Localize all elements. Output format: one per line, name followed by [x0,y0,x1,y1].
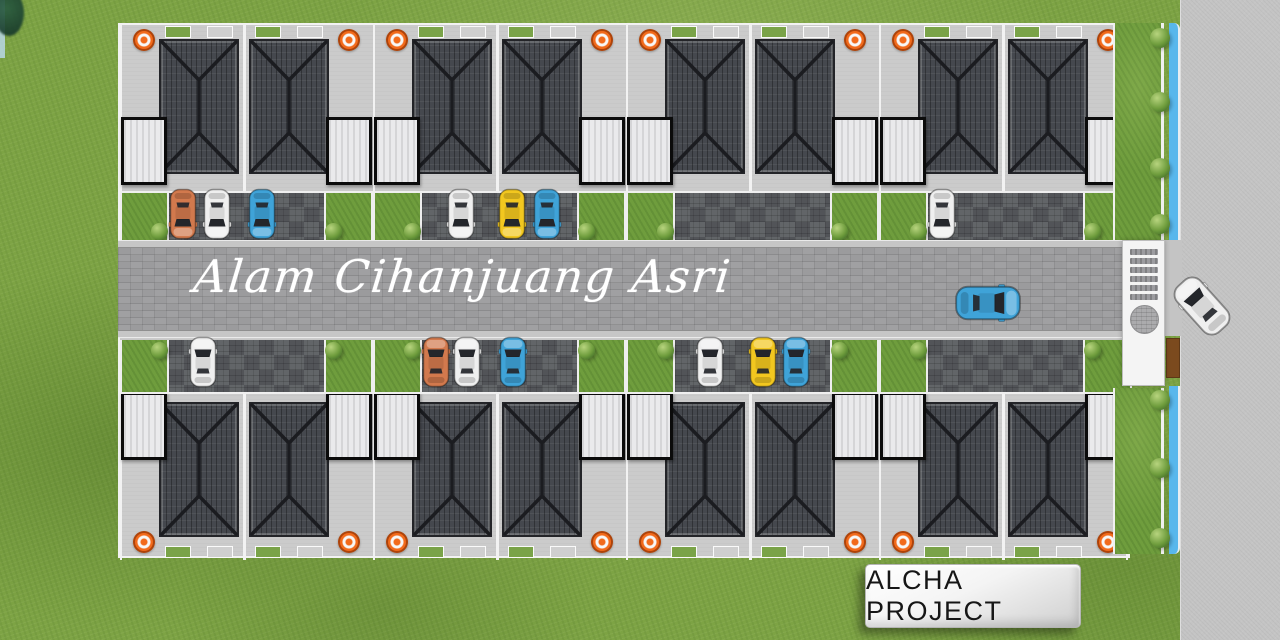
yard-bush-icon [404,223,421,240]
driveway [675,192,830,242]
house-terrace [550,546,576,558]
house-roof [1008,39,1088,174]
gate-barrier [1166,338,1180,378]
house-terrace [255,546,281,558]
plot-divider [1002,25,1005,192]
water-tank-icon [386,531,408,553]
house-terrace [460,26,486,38]
water-tank-icon [133,29,155,51]
house-terrace [671,546,697,558]
gate-louver [1130,267,1158,273]
house-roof [502,39,582,174]
house-terrace [165,26,191,38]
carport [326,392,372,460]
canal-bush-icon [1150,528,1170,548]
house-roof [665,39,745,174]
main-road: Alam Cihanjuang Asri [118,248,1122,330]
sidewalk-north [118,240,1130,248]
house-terrace [1014,26,1040,38]
green-belt-north [1113,23,1164,240]
house-terrace [924,26,950,38]
driveway [422,340,577,394]
water-tank-icon [338,531,360,553]
house-terrace [803,546,829,558]
roof-ridge-icon [918,39,998,174]
roof-ridge-icon [249,402,329,537]
house-roof [412,402,492,537]
carport [832,392,878,460]
roof-ridge-icon [1008,402,1088,537]
house-roof [249,39,329,174]
house-terrace [418,546,444,558]
plot-strip-line [120,392,1128,394]
entrance-gate [1122,240,1165,386]
project-badge-button[interactable]: ALCHA PROJECT [865,564,1081,628]
carport [880,392,926,460]
roof-ridge-icon [412,39,492,174]
carport [627,392,673,460]
driveway [169,192,324,242]
entrance-driveway [1164,240,1182,336]
carport [579,392,625,460]
house-terrace [671,26,697,38]
house-terrace [761,546,787,558]
canal-bush-icon [1150,458,1170,478]
yard-bush-icon [910,223,927,240]
house-roof [159,402,239,537]
roof-ridge-icon [918,402,998,537]
roof-ridge-icon [412,402,492,537]
canal-bush-icon [1150,390,1170,410]
driveway [928,192,1083,242]
canal-bush-icon [1150,214,1170,234]
yard-bush-icon [657,342,674,359]
roof-ridge-icon [755,402,835,537]
house-terrace [1056,546,1082,558]
house-terrace [418,26,444,38]
canal-bush-icon [1150,28,1170,48]
yard-bush-icon [325,342,342,359]
house-terrace [713,546,739,558]
water-tank-icon [133,531,155,553]
plot-divider [243,25,246,192]
gate-louver [1130,294,1158,300]
water-tank-icon [892,531,914,553]
carport [326,117,372,185]
house-roof [1008,402,1088,537]
driveway [422,192,577,242]
roof-ridge-icon [502,39,582,174]
canal-north [1169,23,1180,240]
gate-louver [1130,276,1158,282]
house-roof [412,39,492,174]
house-terrace [713,26,739,38]
water-tank-icon [591,29,613,51]
roof-ridge-icon [1008,39,1088,174]
house-terrace [207,546,233,558]
yard-bush-icon [325,223,342,240]
driveway [928,340,1083,394]
house-terrace [966,546,992,558]
carport [627,117,673,185]
carport [880,117,926,185]
house-terrace [460,546,486,558]
carport [121,392,167,460]
roof-ridge-icon [665,402,745,537]
yard-bush-icon [657,223,674,240]
yard-bush-icon [831,342,848,359]
house-roof [159,39,239,174]
house-terrace [761,26,787,38]
house-roof [665,402,745,537]
water-tank-icon [639,531,661,553]
yard-bush-icon [831,223,848,240]
yard-bush-icon [1084,223,1101,240]
house-terrace [550,26,576,38]
house-terrace [1014,546,1040,558]
roof-ridge-icon [159,402,239,537]
gate-louver [1130,249,1158,255]
house-roof [249,402,329,537]
roof-ridge-icon [159,39,239,174]
yard-bush-icon [578,342,595,359]
roof-ridge-icon [665,39,745,174]
gate-louver [1130,258,1158,264]
yard-bush-icon [151,342,168,359]
carport [579,117,625,185]
plot-divider [496,394,499,560]
house-terrace [803,26,829,38]
plot-strip-line [120,191,1128,193]
gate-louver [1130,285,1158,291]
canal-south [1169,386,1180,554]
outer-road [1180,0,1280,640]
house-terrace [508,546,534,558]
water-tank-icon [386,29,408,51]
roof-ridge-icon [755,39,835,174]
house-roof [918,39,998,174]
carport [374,392,420,460]
canal-bush-icon [1150,158,1170,178]
house-terrace [966,26,992,38]
plot-divider [749,394,752,560]
plot-divider [243,394,246,560]
water-tank-icon [591,531,613,553]
yard-bush-icon [404,342,421,359]
water-tank-icon [892,29,914,51]
water-tank-icon [639,29,661,51]
house-terrace [1056,26,1082,38]
street-name-label: Alam Cihanjuang Asri [191,250,734,303]
gate-circle-feature [1130,305,1159,334]
siteplan-scene: Alam Cihanjuang Asri ALCHA PROJECT [0,0,1280,640]
carport [374,117,420,185]
house-terrace [924,546,950,558]
roof-ridge-icon [249,39,329,174]
house-terrace [297,26,323,38]
carport [832,117,878,185]
plot-divider [749,25,752,192]
house-terrace [255,26,281,38]
house-terrace [165,546,191,558]
house-terrace [207,26,233,38]
sidewalk-south [118,330,1130,338]
plot-divider [496,25,499,192]
water-tank-icon [338,29,360,51]
house-roof [755,402,835,537]
water-tank-icon [844,29,866,51]
driveway [675,340,830,394]
roof-ridge-icon [502,402,582,537]
canal-bush-icon [1150,92,1170,112]
yard-bush-icon [578,223,595,240]
water-tank-icon [844,531,866,553]
house-roof [918,402,998,537]
driveway [169,340,324,394]
house-roof [502,402,582,537]
house-terrace [508,26,534,38]
plot-divider [1002,394,1005,560]
house-roof [755,39,835,174]
yard-bush-icon [1084,342,1101,359]
house-terrace [297,546,323,558]
yard-bush-icon [910,342,927,359]
carport [121,117,167,185]
yard-bush-icon [151,223,168,240]
